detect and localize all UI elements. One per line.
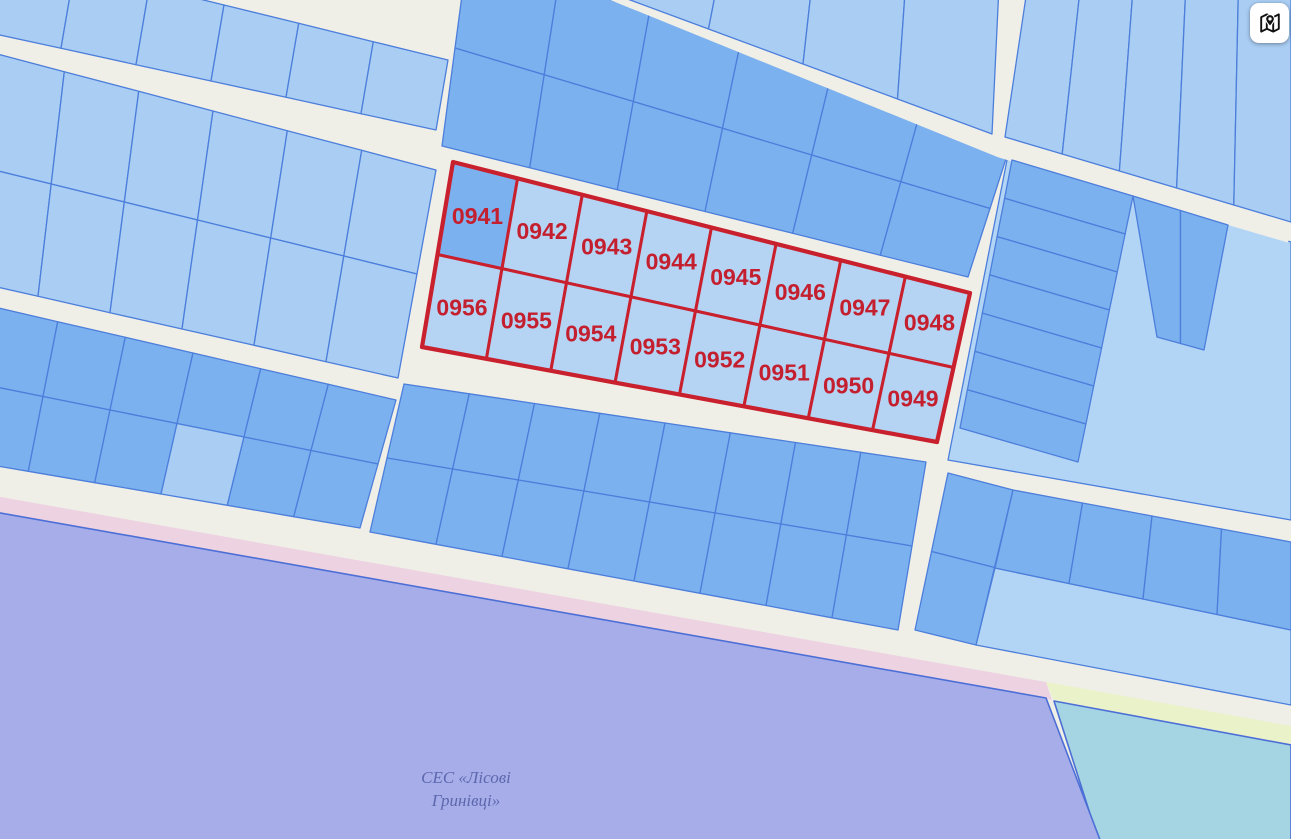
parcel-number-label: 0955 <box>501 307 552 333</box>
parcel[interactable] <box>38 184 124 313</box>
parcel-number-label: 0942 <box>517 218 568 244</box>
zone-name-label: СЕС «Лісові <box>421 768 511 787</box>
parcel-number-label: 0941 <box>452 203 503 229</box>
parcel[interactable] <box>1069 503 1152 599</box>
parcel-number-label: 0950 <box>823 372 874 398</box>
parcel[interactable] <box>832 535 912 630</box>
parcel[interactable] <box>1119 0 1186 188</box>
parcel-number-label: 0945 <box>710 264 761 290</box>
parcel-number-label: 0947 <box>839 294 890 320</box>
parcel-number-label: 0953 <box>630 333 681 359</box>
parcel[interactable] <box>51 72 139 202</box>
parcel[interactable] <box>846 452 926 546</box>
parcel[interactable] <box>1143 516 1222 615</box>
parcel-number-label: 0954 <box>565 320 616 346</box>
cadastral-map[interactable]: 0941094209430944094509460947094809560955… <box>0 0 1291 839</box>
map-layers-button[interactable] <box>1250 3 1289 43</box>
zone-name-label: Гринівці» <box>431 791 500 810</box>
parcel-number-label: 0943 <box>581 233 632 259</box>
parcel-number-label: 0946 <box>775 279 826 305</box>
parcel-number-label: 0944 <box>646 249 697 275</box>
cadastral-map-viewport[interactable]: 0941094209430944094509460947094809560955… <box>0 0 1291 839</box>
parcel[interactable] <box>1217 529 1291 630</box>
parcel-number-label: 0949 <box>887 385 938 411</box>
parcel[interactable] <box>1177 0 1239 205</box>
parcel-number-label: 0956 <box>436 294 487 320</box>
parcel-number-label: 0952 <box>694 346 745 372</box>
map-pin-icon <box>1258 11 1282 35</box>
parcel-number-label: 0948 <box>904 310 955 336</box>
parcel-number-label: 0951 <box>759 359 810 385</box>
